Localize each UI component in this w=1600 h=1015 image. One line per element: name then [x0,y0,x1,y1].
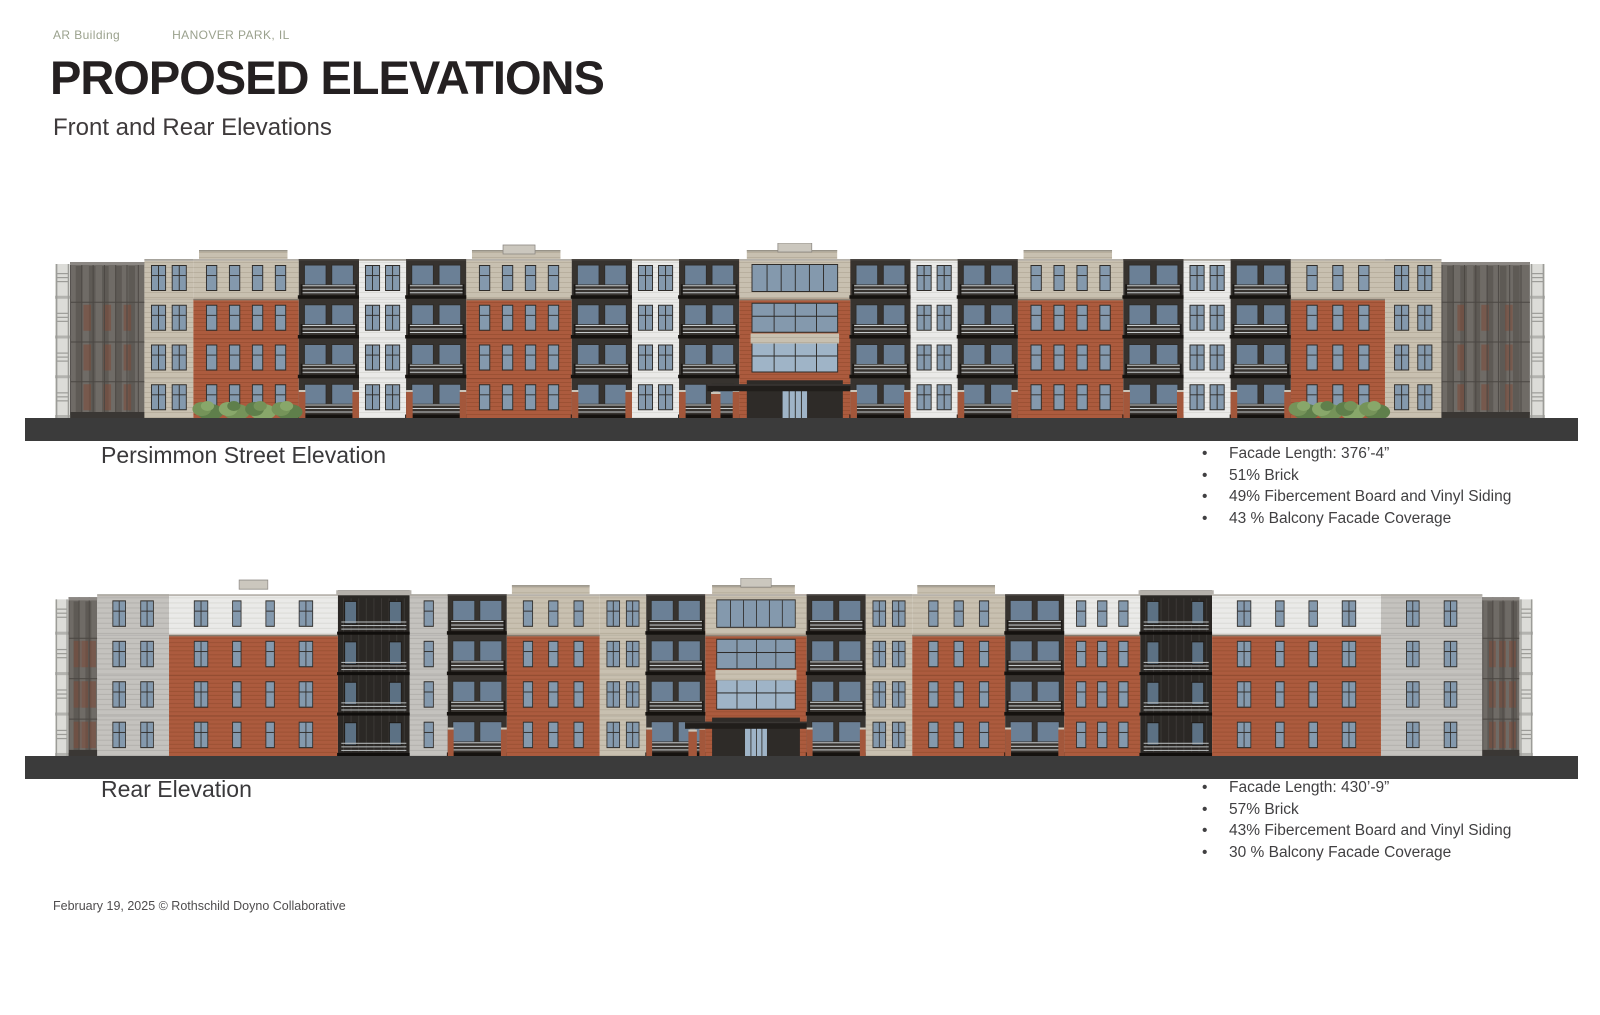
project-location: HANOVER PARK, IL [172,28,290,42]
rear-elevation-stats: Facade Length: 430’-9” 57% Brick 43% Fib… [1200,777,1600,863]
stat-item: 43% Fibercement Board and Vinyl Siding [1200,820,1600,842]
page-title: PROPOSED ELEVATIONS [50,50,604,105]
stat-item: 51% Brick [1200,465,1600,487]
stat-item: 57% Brick [1200,799,1600,821]
presentation-sheet: AR BuildingHANOVER PARK, IL PROPOSED ELE… [0,0,1600,1015]
header-meta: AR BuildingHANOVER PARK, IL [53,28,290,42]
stat-item: 49% Fibercement Board and Vinyl Siding [1200,486,1600,508]
rear-elevation-drawing [55,578,1533,756]
front-elevation-stats: Facade Length: 376’-4” 51% Brick 49% Fib… [1200,443,1600,529]
stat-item: 30 % Balcony Facade Coverage [1200,842,1600,864]
stat-item: 43 % Balcony Facade Coverage [1200,508,1600,530]
rear-elevation-rendering [55,578,1533,756]
front-ground-line [25,418,1578,441]
page-subtitle: Front and Rear Elevations [53,114,332,142]
front-elevation-label: Persimmon Street Elevation [101,442,386,469]
front-elevation-drawing [55,243,1545,418]
project-name: AR Building [53,28,120,42]
front-elevation-rendering [55,243,1545,418]
stat-item: Facade Length: 376’-4” [1200,443,1600,465]
footer-credit: February 19, 2025 © Rothschild Doyno Col… [53,899,346,913]
rear-ground-line [25,756,1578,779]
stat-item: Facade Length: 430’-9” [1200,777,1600,799]
rear-elevation-label: Rear Elevation [101,776,252,803]
